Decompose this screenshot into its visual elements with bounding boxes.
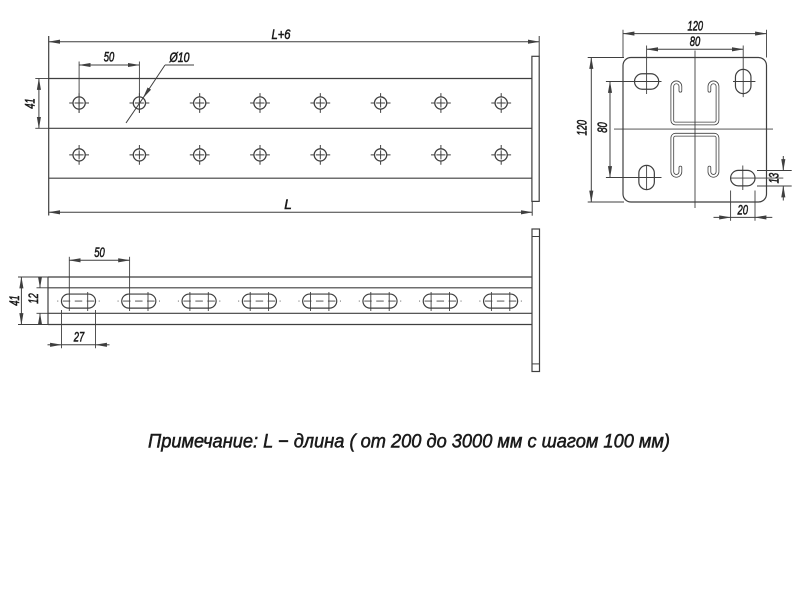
svg-text:13: 13 (767, 173, 782, 184)
svg-text:Ø10: Ø10 (169, 50, 190, 65)
svg-text:L+6: L+6 (272, 27, 291, 42)
svg-text:50: 50 (94, 245, 105, 260)
svg-text:20: 20 (737, 203, 749, 218)
svg-text:41: 41 (23, 98, 38, 109)
svg-text:80: 80 (595, 122, 610, 133)
svg-text:120: 120 (575, 120, 590, 136)
svg-text:80: 80 (690, 34, 701, 49)
svg-text:L: L (284, 197, 292, 212)
svg-text:Примечание: L − длина ( от 200: Примечание: L − длина ( от 200 до 3000 м… (148, 431, 670, 453)
svg-text:12: 12 (26, 293, 41, 304)
svg-text:41: 41 (7, 295, 22, 306)
svg-text:120: 120 (688, 18, 704, 33)
svg-text:27: 27 (73, 330, 85, 345)
svg-text:50: 50 (104, 50, 115, 65)
